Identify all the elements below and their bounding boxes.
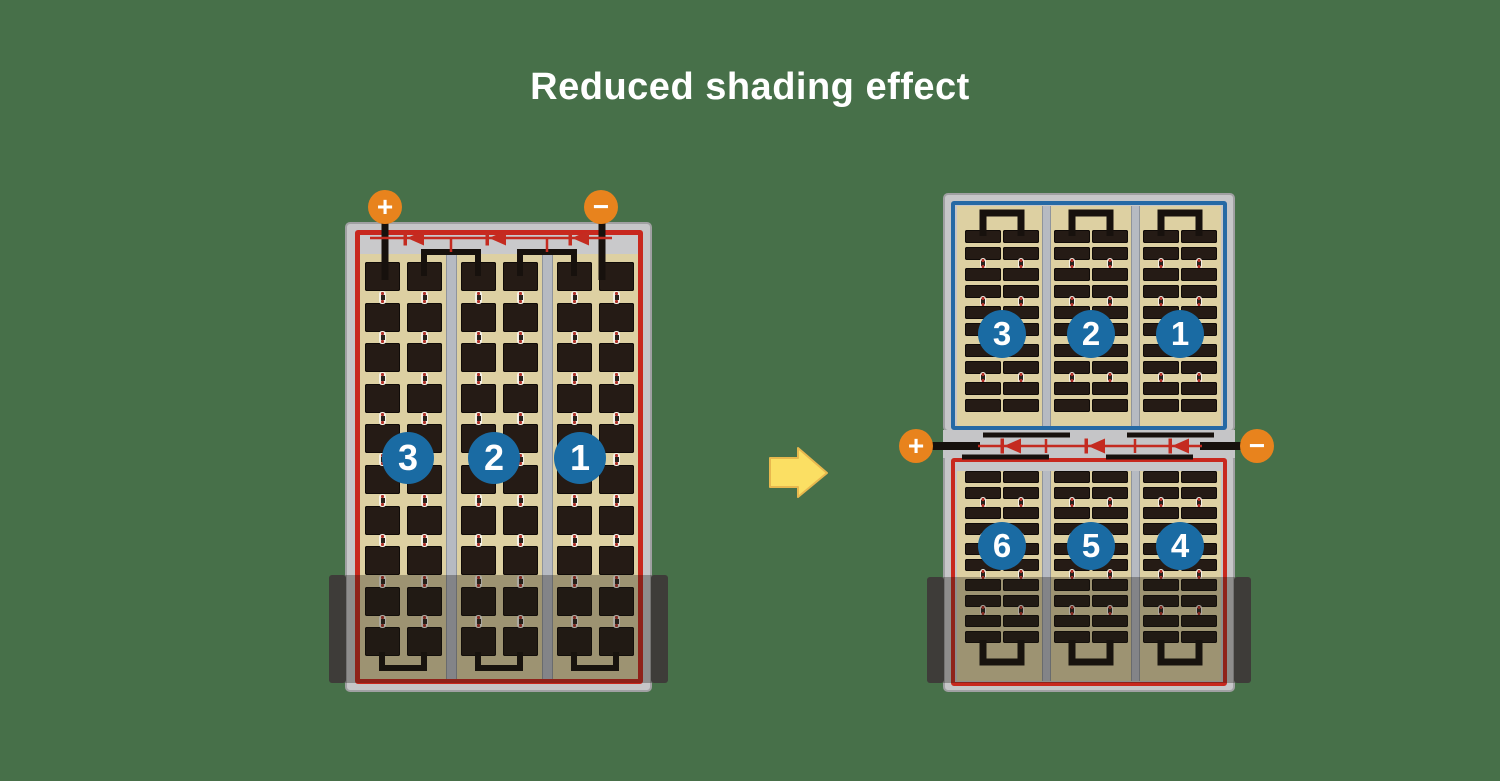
half-cell <box>965 382 1001 395</box>
solar-cell <box>461 506 496 535</box>
cell-connector <box>571 372 578 385</box>
cell-connector <box>571 291 578 304</box>
cell-connector <box>421 534 428 547</box>
half-cell <box>1143 382 1179 395</box>
left-positive-terminal-icon: + <box>368 190 402 224</box>
cell-connector <box>571 534 578 547</box>
half-cell <box>1054 399 1090 412</box>
half-cell <box>965 268 1001 281</box>
half-cell <box>1054 507 1090 519</box>
solar-cell <box>557 546 592 575</box>
cell-connector <box>517 412 524 425</box>
half-cell <box>1003 471 1039 483</box>
half-cell <box>1143 507 1179 519</box>
solar-cell <box>461 546 496 575</box>
shade-band-cap <box>927 577 944 683</box>
panel-divider <box>1131 206 1140 426</box>
cell-connector <box>421 331 428 344</box>
solar-cell <box>503 303 538 332</box>
half-cell <box>1092 230 1128 243</box>
half-cell <box>1092 382 1128 395</box>
solar-cell <box>407 506 442 535</box>
cell-connector <box>421 494 428 507</box>
cell-connector <box>379 412 386 425</box>
solar-cell <box>557 343 592 372</box>
half-cell <box>1181 230 1217 243</box>
solar-cell <box>503 384 538 413</box>
cell-connector <box>517 494 524 507</box>
cell-connector <box>475 372 482 385</box>
solar-cell <box>461 343 496 372</box>
shade-band-cap <box>1234 577 1251 683</box>
solar-cell <box>365 262 400 291</box>
cell-connector <box>517 372 524 385</box>
half-cell <box>965 471 1001 483</box>
shade-band-cap <box>329 575 346 683</box>
solar-cell <box>365 546 400 575</box>
shade-overlay-left <box>345 575 652 683</box>
cell-connector <box>475 534 482 547</box>
string-number: 1 <box>1171 315 1189 353</box>
solar-cell <box>599 343 634 372</box>
solar-cell <box>407 262 442 291</box>
cell-connector <box>613 412 620 425</box>
cell-connector <box>379 372 386 385</box>
string-number: 6 <box>993 527 1011 565</box>
half-cell <box>1092 507 1128 519</box>
solar-cell <box>557 384 592 413</box>
solar-cell <box>461 303 496 332</box>
half-cell <box>1143 230 1179 243</box>
half-cell <box>1181 399 1217 412</box>
half-cell <box>965 399 1001 412</box>
plus-label: + <box>377 193 393 221</box>
cell-connector <box>571 331 578 344</box>
minus-label: − <box>1249 432 1265 460</box>
right-arrow-icon <box>755 440 850 510</box>
solar-cell <box>557 506 592 535</box>
solar-cell <box>365 384 400 413</box>
string-badge-top-2: 2 <box>1067 310 1115 358</box>
string-number: 2 <box>1082 315 1100 353</box>
half-cell <box>1092 471 1128 483</box>
string-badge-top-1: 1 <box>1156 310 1204 358</box>
cell-connector <box>613 534 620 547</box>
cell-connector <box>475 494 482 507</box>
cell-connector <box>379 331 386 344</box>
string-number: 3 <box>993 315 1011 353</box>
right-positive-terminal-icon: + <box>899 429 933 463</box>
cell-connector <box>571 412 578 425</box>
string-badge-left-2: 2 <box>468 432 520 484</box>
cell-connector <box>421 372 428 385</box>
string-badge-left-1: 1 <box>554 432 606 484</box>
solar-cell <box>407 343 442 372</box>
cell-connector <box>613 494 620 507</box>
half-cell <box>1143 399 1179 412</box>
string-number: 1 <box>570 437 590 479</box>
cell-connector <box>379 534 386 547</box>
solar-cell <box>461 262 496 291</box>
reduced-shading-diagram: Reduced shading effect + − + − 3 2 1 3 2 <box>0 0 1500 781</box>
right-negative-terminal-icon: − <box>1240 429 1274 463</box>
solar-cell <box>407 303 442 332</box>
half-cell <box>1092 399 1128 412</box>
half-cell <box>965 230 1001 243</box>
cell-connector <box>517 291 524 304</box>
string-badge-bottom-4: 4 <box>1156 522 1204 570</box>
half-cell <box>965 507 1001 519</box>
string-number: 5 <box>1082 527 1100 565</box>
cell-connector <box>613 291 620 304</box>
minus-label: − <box>593 193 609 221</box>
cell-connector <box>517 331 524 344</box>
left-negative-terminal-icon: − <box>584 190 618 224</box>
cell-connector <box>571 494 578 507</box>
cell-connector <box>613 372 620 385</box>
string-number: 3 <box>398 437 418 479</box>
solar-cell <box>557 303 592 332</box>
string-number: 2 <box>484 437 504 479</box>
half-cell <box>1003 230 1039 243</box>
cell-connector <box>421 412 428 425</box>
solar-cell <box>407 546 442 575</box>
solar-cell <box>365 303 400 332</box>
solar-cell <box>503 546 538 575</box>
solar-cell <box>599 303 634 332</box>
solar-cell <box>599 262 634 291</box>
half-cell <box>1054 382 1090 395</box>
plus-label: + <box>908 432 924 460</box>
cell-connector <box>517 534 524 547</box>
solar-cell <box>599 546 634 575</box>
shade-overlay-right <box>943 577 1235 683</box>
half-cell <box>1181 268 1217 281</box>
cell-connector <box>421 291 428 304</box>
cell-connector <box>379 494 386 507</box>
half-cell <box>1181 382 1217 395</box>
string-badge-left-3: 3 <box>382 432 434 484</box>
solar-cell <box>503 262 538 291</box>
cell-connector <box>475 291 482 304</box>
cell-connector <box>379 291 386 304</box>
shade-band-cap <box>651 575 668 683</box>
solar-cell <box>461 384 496 413</box>
solar-cell <box>503 506 538 535</box>
panel-divider <box>1042 206 1051 426</box>
cell-connector <box>613 453 620 466</box>
half-cell <box>1143 268 1179 281</box>
half-cell <box>1181 507 1217 519</box>
solar-cell <box>599 506 634 535</box>
cell-connector <box>613 331 620 344</box>
half-cell <box>1003 399 1039 412</box>
solar-cell <box>599 465 634 494</box>
solar-cell <box>365 506 400 535</box>
half-cell <box>1054 230 1090 243</box>
half-cell <box>1003 507 1039 519</box>
half-cell <box>1181 471 1217 483</box>
half-cell <box>1143 471 1179 483</box>
solar-cell <box>365 343 400 372</box>
solar-cell <box>503 343 538 372</box>
string-badge-top-3: 3 <box>978 310 1026 358</box>
solar-cell <box>407 384 442 413</box>
solar-cell <box>599 384 634 413</box>
cell-grid-layer <box>0 0 1500 781</box>
cell-connector <box>475 331 482 344</box>
half-cell <box>1003 382 1039 395</box>
string-badge-bottom-6: 6 <box>978 522 1026 570</box>
string-badge-bottom-5: 5 <box>1067 522 1115 570</box>
half-cell <box>1092 268 1128 281</box>
solar-cell <box>557 262 592 291</box>
cell-connector <box>475 412 482 425</box>
half-cell <box>1003 268 1039 281</box>
half-cell <box>1054 471 1090 483</box>
half-cell <box>1054 268 1090 281</box>
string-number: 4 <box>1171 527 1189 565</box>
